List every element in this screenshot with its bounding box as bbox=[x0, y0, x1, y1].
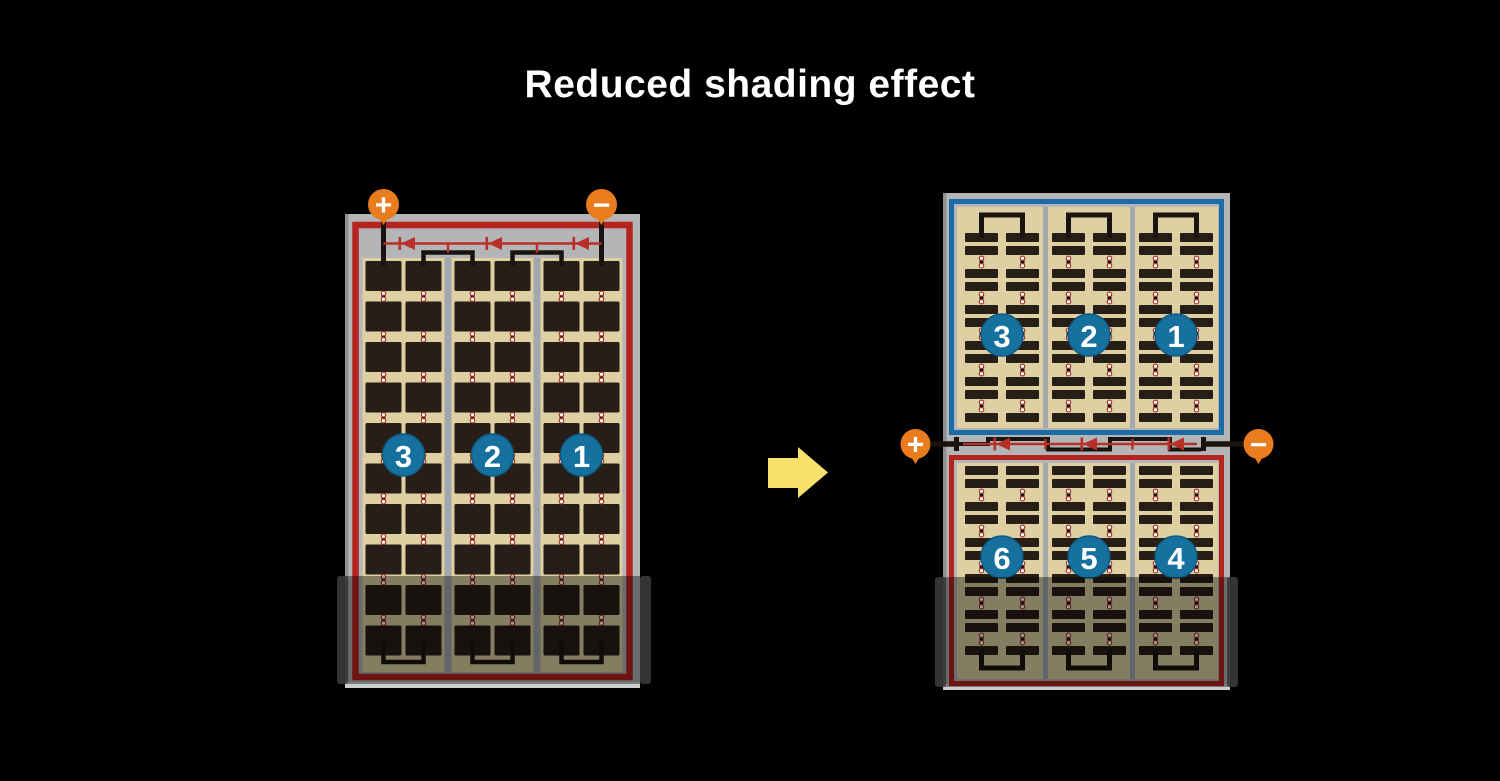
connector-dot bbox=[381, 291, 385, 295]
connector-dot bbox=[1194, 525, 1198, 529]
connector-dot bbox=[1194, 264, 1198, 268]
solar-cell-strip bbox=[1052, 377, 1085, 386]
connector-dot bbox=[1020, 292, 1024, 296]
solar-cell-strip bbox=[1139, 466, 1172, 475]
connector-dot bbox=[1153, 292, 1157, 296]
connector-dot bbox=[1020, 497, 1024, 501]
connector-dot bbox=[421, 419, 425, 423]
solar-cell bbox=[366, 302, 402, 332]
solar-cell-strip bbox=[1052, 502, 1085, 511]
connector-dot bbox=[979, 400, 983, 404]
left-panel: +−321 bbox=[337, 189, 651, 688]
solar-cell bbox=[406, 342, 442, 372]
solar-cell-strip bbox=[1006, 354, 1039, 363]
solar-cell bbox=[584, 545, 620, 575]
connector-dot bbox=[381, 419, 385, 423]
string-number-badge: 3 bbox=[383, 434, 425, 476]
solar-cell-strip bbox=[1139, 269, 1172, 278]
solar-cell-strip bbox=[965, 282, 998, 291]
connector-dot bbox=[559, 372, 563, 376]
connector-dot bbox=[1107, 364, 1111, 368]
solar-cell-strip bbox=[1180, 515, 1213, 524]
solar-cell bbox=[455, 504, 491, 534]
connector-dot bbox=[1107, 372, 1111, 376]
solar-cell bbox=[495, 504, 531, 534]
connector-dot bbox=[979, 292, 983, 296]
solar-cell bbox=[544, 545, 580, 575]
solar-cell bbox=[406, 302, 442, 332]
connector-dot bbox=[1153, 364, 1157, 368]
solar-cell-strip bbox=[1093, 354, 1126, 363]
connector-dot bbox=[1107, 408, 1111, 412]
solar-cell-strip bbox=[1139, 413, 1172, 422]
connector-dot bbox=[1153, 264, 1157, 268]
connector-dot bbox=[381, 413, 385, 417]
connector-dot bbox=[1107, 300, 1111, 304]
solar-cell-strip bbox=[1093, 390, 1126, 399]
solar-cell bbox=[584, 504, 620, 534]
connector-dot bbox=[599, 534, 603, 538]
connector-dot bbox=[559, 338, 563, 342]
solar-cell-strip bbox=[965, 515, 998, 524]
connector-dot bbox=[1194, 364, 1198, 368]
connector-dot bbox=[470, 419, 474, 423]
connector-dot bbox=[1020, 264, 1024, 268]
solar-cell-strip bbox=[1093, 479, 1126, 488]
transform-arrow-icon bbox=[768, 447, 828, 498]
solar-cell-strip bbox=[1006, 479, 1039, 488]
connector-dot bbox=[599, 494, 603, 498]
solar-cell-strip bbox=[1052, 390, 1085, 399]
badge-number: 5 bbox=[1080, 541, 1097, 576]
connector-dot bbox=[1066, 372, 1070, 376]
solar-cell-strip bbox=[1139, 282, 1172, 291]
connector-dot bbox=[1107, 256, 1111, 260]
connector-dot bbox=[421, 338, 425, 342]
connector-dot bbox=[599, 291, 603, 295]
solar-cell-strip bbox=[1093, 305, 1126, 314]
solar-cell-strip bbox=[1006, 390, 1039, 399]
badge-number: 4 bbox=[1167, 541, 1185, 576]
connector-dot bbox=[510, 372, 514, 376]
shading-overlay bbox=[337, 576, 651, 684]
solar-cell-strip bbox=[1180, 479, 1213, 488]
solar-cell bbox=[584, 302, 620, 332]
badge-number: 2 bbox=[484, 439, 501, 474]
connector-dot bbox=[599, 372, 603, 376]
solar-cell-strip bbox=[1139, 354, 1172, 363]
connector-dot bbox=[510, 413, 514, 417]
solar-cell-strip bbox=[1006, 413, 1039, 422]
connector-dot bbox=[1066, 408, 1070, 412]
connector-dot bbox=[1107, 292, 1111, 296]
solar-cell-strip bbox=[965, 413, 998, 422]
solar-cell-strip bbox=[1052, 305, 1085, 314]
solar-cell-strip bbox=[1093, 269, 1126, 278]
solar-cell bbox=[495, 383, 531, 413]
connector-dot bbox=[1194, 533, 1198, 537]
solar-cell-strip bbox=[1052, 269, 1085, 278]
connector-dot bbox=[1107, 525, 1111, 529]
connector-dot bbox=[510, 500, 514, 504]
solar-cell-strip bbox=[1052, 354, 1085, 363]
badge-number: 3 bbox=[993, 319, 1010, 354]
string-number-badge: 5 bbox=[1068, 536, 1110, 578]
connector-dot bbox=[381, 338, 385, 342]
solar-cell-strip bbox=[1052, 515, 1085, 524]
connector-dot bbox=[559, 534, 563, 538]
connector-dot bbox=[559, 378, 563, 382]
connector-dot bbox=[421, 332, 425, 336]
connector-dot bbox=[421, 500, 425, 504]
connector-dot bbox=[470, 332, 474, 336]
solar-cell-strip bbox=[965, 305, 998, 314]
connector-dot bbox=[1020, 533, 1024, 537]
connector-dot bbox=[1066, 569, 1070, 573]
solar-cell bbox=[455, 302, 491, 332]
connector-dot bbox=[510, 419, 514, 423]
connector-dot bbox=[599, 500, 603, 504]
solar-cell-strip bbox=[965, 479, 998, 488]
connector-dot bbox=[559, 419, 563, 423]
connector-dot bbox=[559, 494, 563, 498]
solar-cell bbox=[406, 545, 442, 575]
right-panel: 321654+− bbox=[901, 193, 1274, 690]
connector-dot bbox=[1107, 400, 1111, 404]
badge-number: 1 bbox=[1167, 319, 1184, 354]
connector-dot bbox=[1020, 525, 1024, 529]
solar-cell-strip bbox=[965, 390, 998, 399]
connector-dot bbox=[1066, 533, 1070, 537]
solar-cell-strip bbox=[1180, 354, 1213, 363]
connector-dot bbox=[381, 540, 385, 544]
solar-cell bbox=[495, 545, 531, 575]
connector-dot bbox=[1020, 256, 1024, 260]
solar-cell-strip bbox=[1180, 269, 1213, 278]
connector-dot bbox=[1153, 533, 1157, 537]
solar-cell-strip bbox=[965, 246, 998, 255]
solar-cell-strip bbox=[1093, 246, 1126, 255]
connector-dot bbox=[470, 338, 474, 342]
solar-cell bbox=[366, 504, 402, 534]
badge-number: 6 bbox=[993, 541, 1010, 576]
connector-dot bbox=[979, 497, 983, 501]
solar-cell bbox=[495, 342, 531, 372]
connector-dot bbox=[979, 372, 983, 376]
solar-cell-strip bbox=[1093, 502, 1126, 511]
connector-dot bbox=[979, 364, 983, 368]
connector-dot bbox=[559, 297, 563, 301]
plus-terminal: + bbox=[901, 429, 931, 465]
solar-cell-strip bbox=[1139, 305, 1172, 314]
connector-dot bbox=[1066, 264, 1070, 268]
solar-cell-strip bbox=[965, 466, 998, 475]
connector-dot bbox=[1066, 525, 1070, 529]
connector-dot bbox=[1066, 400, 1070, 404]
connector-dot bbox=[1153, 400, 1157, 404]
solar-cell-strip bbox=[1093, 515, 1126, 524]
shading-overlay-cap bbox=[337, 576, 348, 684]
connector-dot bbox=[381, 494, 385, 498]
connector-dot bbox=[470, 378, 474, 382]
solar-cell-strip bbox=[1052, 413, 1085, 422]
solar-cell-strip bbox=[1180, 377, 1213, 386]
connector-dot bbox=[421, 494, 425, 498]
string-number-badge: 2 bbox=[1068, 314, 1110, 356]
connector-dot bbox=[599, 419, 603, 423]
connector-dot bbox=[979, 533, 983, 537]
solar-cell-strip bbox=[1139, 515, 1172, 524]
connector-dot bbox=[1020, 400, 1024, 404]
connector-dot bbox=[1194, 372, 1198, 376]
connector-dot bbox=[381, 372, 385, 376]
connector-dot bbox=[1020, 569, 1024, 573]
connector-dot bbox=[470, 291, 474, 295]
solar-cell-strip bbox=[1139, 246, 1172, 255]
connector-dot bbox=[979, 569, 983, 573]
solar-cell-strip bbox=[1180, 390, 1213, 399]
plus-terminal-label: + bbox=[907, 429, 925, 462]
connector-dot bbox=[421, 534, 425, 538]
solar-cell-strip bbox=[1180, 466, 1213, 475]
solar-cell bbox=[366, 545, 402, 575]
connector-dot bbox=[470, 413, 474, 417]
connector-dot bbox=[559, 413, 563, 417]
solar-cell bbox=[366, 383, 402, 413]
minus-terminal: − bbox=[1244, 429, 1274, 465]
solar-cell-strip bbox=[965, 269, 998, 278]
connector-dot bbox=[421, 540, 425, 544]
connector-dot bbox=[470, 534, 474, 538]
shading-overlay bbox=[935, 577, 1238, 687]
connector-dot bbox=[599, 378, 603, 382]
solar-cell-strip bbox=[1006, 246, 1039, 255]
connector-dot bbox=[979, 489, 983, 493]
connector-dot bbox=[1066, 292, 1070, 296]
connector-dot bbox=[599, 413, 603, 417]
plus-terminal-label: + bbox=[375, 189, 393, 222]
solar-cell bbox=[544, 342, 580, 372]
connector-dot bbox=[979, 300, 983, 304]
solar-cell-strip bbox=[1139, 502, 1172, 511]
connector-dot bbox=[979, 525, 983, 529]
solar-cell bbox=[366, 342, 402, 372]
connector-dot bbox=[510, 338, 514, 342]
connector-dot bbox=[510, 297, 514, 301]
connector-dot bbox=[1020, 300, 1024, 304]
connector-dot bbox=[421, 291, 425, 295]
connector-dot bbox=[510, 534, 514, 538]
solar-cell bbox=[544, 302, 580, 332]
connector-dot bbox=[1153, 525, 1157, 529]
connector-dot bbox=[979, 264, 983, 268]
connector-dot bbox=[599, 332, 603, 336]
solar-cell bbox=[544, 504, 580, 534]
solar-panel-diagram: +−321321654+− bbox=[0, 0, 1500, 781]
solar-cell-strip bbox=[1006, 269, 1039, 278]
connector-dot bbox=[510, 494, 514, 498]
connector-dot bbox=[1194, 497, 1198, 501]
solar-cell-strip bbox=[1180, 246, 1213, 255]
connector-dot bbox=[1194, 408, 1198, 412]
connector-dot bbox=[1107, 569, 1111, 573]
solar-cell-strip bbox=[1180, 413, 1213, 422]
badge-number: 2 bbox=[1080, 319, 1097, 354]
solar-cell bbox=[406, 504, 442, 534]
connector-dot bbox=[559, 500, 563, 504]
solar-cell-strip bbox=[1006, 515, 1039, 524]
connector-dot bbox=[470, 494, 474, 498]
solar-cell bbox=[455, 545, 491, 575]
connector-dot bbox=[1153, 408, 1157, 412]
minus-terminal-label: − bbox=[1250, 429, 1268, 462]
solar-cell-strip bbox=[1052, 282, 1085, 291]
solar-cell-strip bbox=[1006, 502, 1039, 511]
solar-cell bbox=[584, 383, 620, 413]
connector-dot bbox=[1107, 497, 1111, 501]
solar-cell bbox=[455, 383, 491, 413]
connector-dot bbox=[599, 540, 603, 544]
connector-dot bbox=[510, 378, 514, 382]
connector-dot bbox=[1194, 489, 1198, 493]
solar-cell-strip bbox=[1093, 282, 1126, 291]
connector-dot bbox=[381, 378, 385, 382]
connector-dot bbox=[1107, 264, 1111, 268]
connector-dot bbox=[559, 332, 563, 336]
connector-dot bbox=[470, 297, 474, 301]
solar-cell-strip bbox=[1052, 466, 1085, 475]
connector-dot bbox=[510, 291, 514, 295]
string-number-badge: 3 bbox=[981, 314, 1023, 356]
solar-cell bbox=[406, 383, 442, 413]
solar-cell-strip bbox=[1139, 377, 1172, 386]
connector-dot bbox=[559, 540, 563, 544]
shading-overlay-cap bbox=[640, 576, 651, 684]
connector-dot bbox=[1107, 533, 1111, 537]
connector-dot bbox=[381, 500, 385, 504]
minus-terminal-label: − bbox=[593, 189, 611, 222]
connector-dot bbox=[1066, 364, 1070, 368]
string-number-badge: 1 bbox=[561, 434, 603, 476]
connector-dot bbox=[1153, 497, 1157, 501]
solar-cell-strip bbox=[1093, 413, 1126, 422]
connector-dot bbox=[470, 372, 474, 376]
solar-cell bbox=[584, 342, 620, 372]
string-number-badge: 2 bbox=[472, 434, 514, 476]
badge-number: 1 bbox=[573, 439, 590, 474]
string-number-badge: 1 bbox=[1155, 314, 1197, 356]
connector-dot bbox=[1153, 569, 1157, 573]
connector-dot bbox=[510, 332, 514, 336]
connector-dot bbox=[559, 291, 563, 295]
connector-dot bbox=[470, 500, 474, 504]
connector-dot bbox=[1066, 489, 1070, 493]
connector-dot bbox=[421, 372, 425, 376]
connector-dot bbox=[599, 297, 603, 301]
string-number-badge: 6 bbox=[981, 536, 1023, 578]
connector-dot bbox=[979, 256, 983, 260]
connector-dot bbox=[1194, 569, 1198, 573]
connector-dot bbox=[1066, 256, 1070, 260]
connector-dot bbox=[1194, 256, 1198, 260]
solar-cell-strip bbox=[1180, 502, 1213, 511]
diagram-stage: Reduced shading effect +−321321654+− bbox=[0, 0, 1500, 781]
solar-cell-strip bbox=[1093, 466, 1126, 475]
solar-cell-strip bbox=[1180, 305, 1213, 314]
right-panel-top-half: 321 bbox=[952, 202, 1222, 433]
solar-cell bbox=[495, 302, 531, 332]
solar-cell-strip bbox=[1006, 282, 1039, 291]
connector-dot bbox=[470, 540, 474, 544]
connector-dot bbox=[1020, 489, 1024, 493]
connector-dot bbox=[1194, 292, 1198, 296]
solar-cell-strip bbox=[1180, 282, 1213, 291]
connector-dot bbox=[1153, 489, 1157, 493]
solar-cell-strip bbox=[1093, 377, 1126, 386]
solar-cell-strip bbox=[1139, 479, 1172, 488]
connector-dot bbox=[1153, 372, 1157, 376]
connector-dot bbox=[510, 540, 514, 544]
connector-dot bbox=[1107, 489, 1111, 493]
string-number-badge: 4 bbox=[1155, 536, 1197, 578]
shading-overlay-cap bbox=[1227, 577, 1238, 687]
solar-cell-strip bbox=[965, 354, 998, 363]
connector-dot bbox=[421, 378, 425, 382]
connector-dot bbox=[1066, 300, 1070, 304]
solar-cell-strip bbox=[1052, 479, 1085, 488]
connector-dot bbox=[381, 534, 385, 538]
solar-cell-strip bbox=[1006, 466, 1039, 475]
solar-cell-strip bbox=[1052, 246, 1085, 255]
solar-cell-strip bbox=[1006, 305, 1039, 314]
connector-dot bbox=[1020, 408, 1024, 412]
connector-dot bbox=[979, 408, 983, 412]
badge-number: 3 bbox=[395, 439, 412, 474]
solar-cell-strip bbox=[1139, 390, 1172, 399]
solar-cell bbox=[455, 342, 491, 372]
solar-cell-strip bbox=[965, 502, 998, 511]
connector-dot bbox=[1194, 300, 1198, 304]
solar-cell-strip bbox=[1006, 377, 1039, 386]
connector-dot bbox=[1153, 256, 1157, 260]
connector-dot bbox=[381, 332, 385, 336]
connector-dot bbox=[1020, 364, 1024, 368]
connector-dot bbox=[1194, 400, 1198, 404]
connector-dot bbox=[421, 413, 425, 417]
connector-dot bbox=[1066, 497, 1070, 501]
solar-cell-strip bbox=[965, 377, 998, 386]
connector-dot bbox=[1020, 372, 1024, 376]
connector-dot bbox=[381, 297, 385, 301]
shading-overlay-cap bbox=[935, 577, 946, 687]
connector-dot bbox=[421, 297, 425, 301]
connector-dot bbox=[1153, 300, 1157, 304]
connector-dot bbox=[599, 338, 603, 342]
solar-cell bbox=[544, 383, 580, 413]
